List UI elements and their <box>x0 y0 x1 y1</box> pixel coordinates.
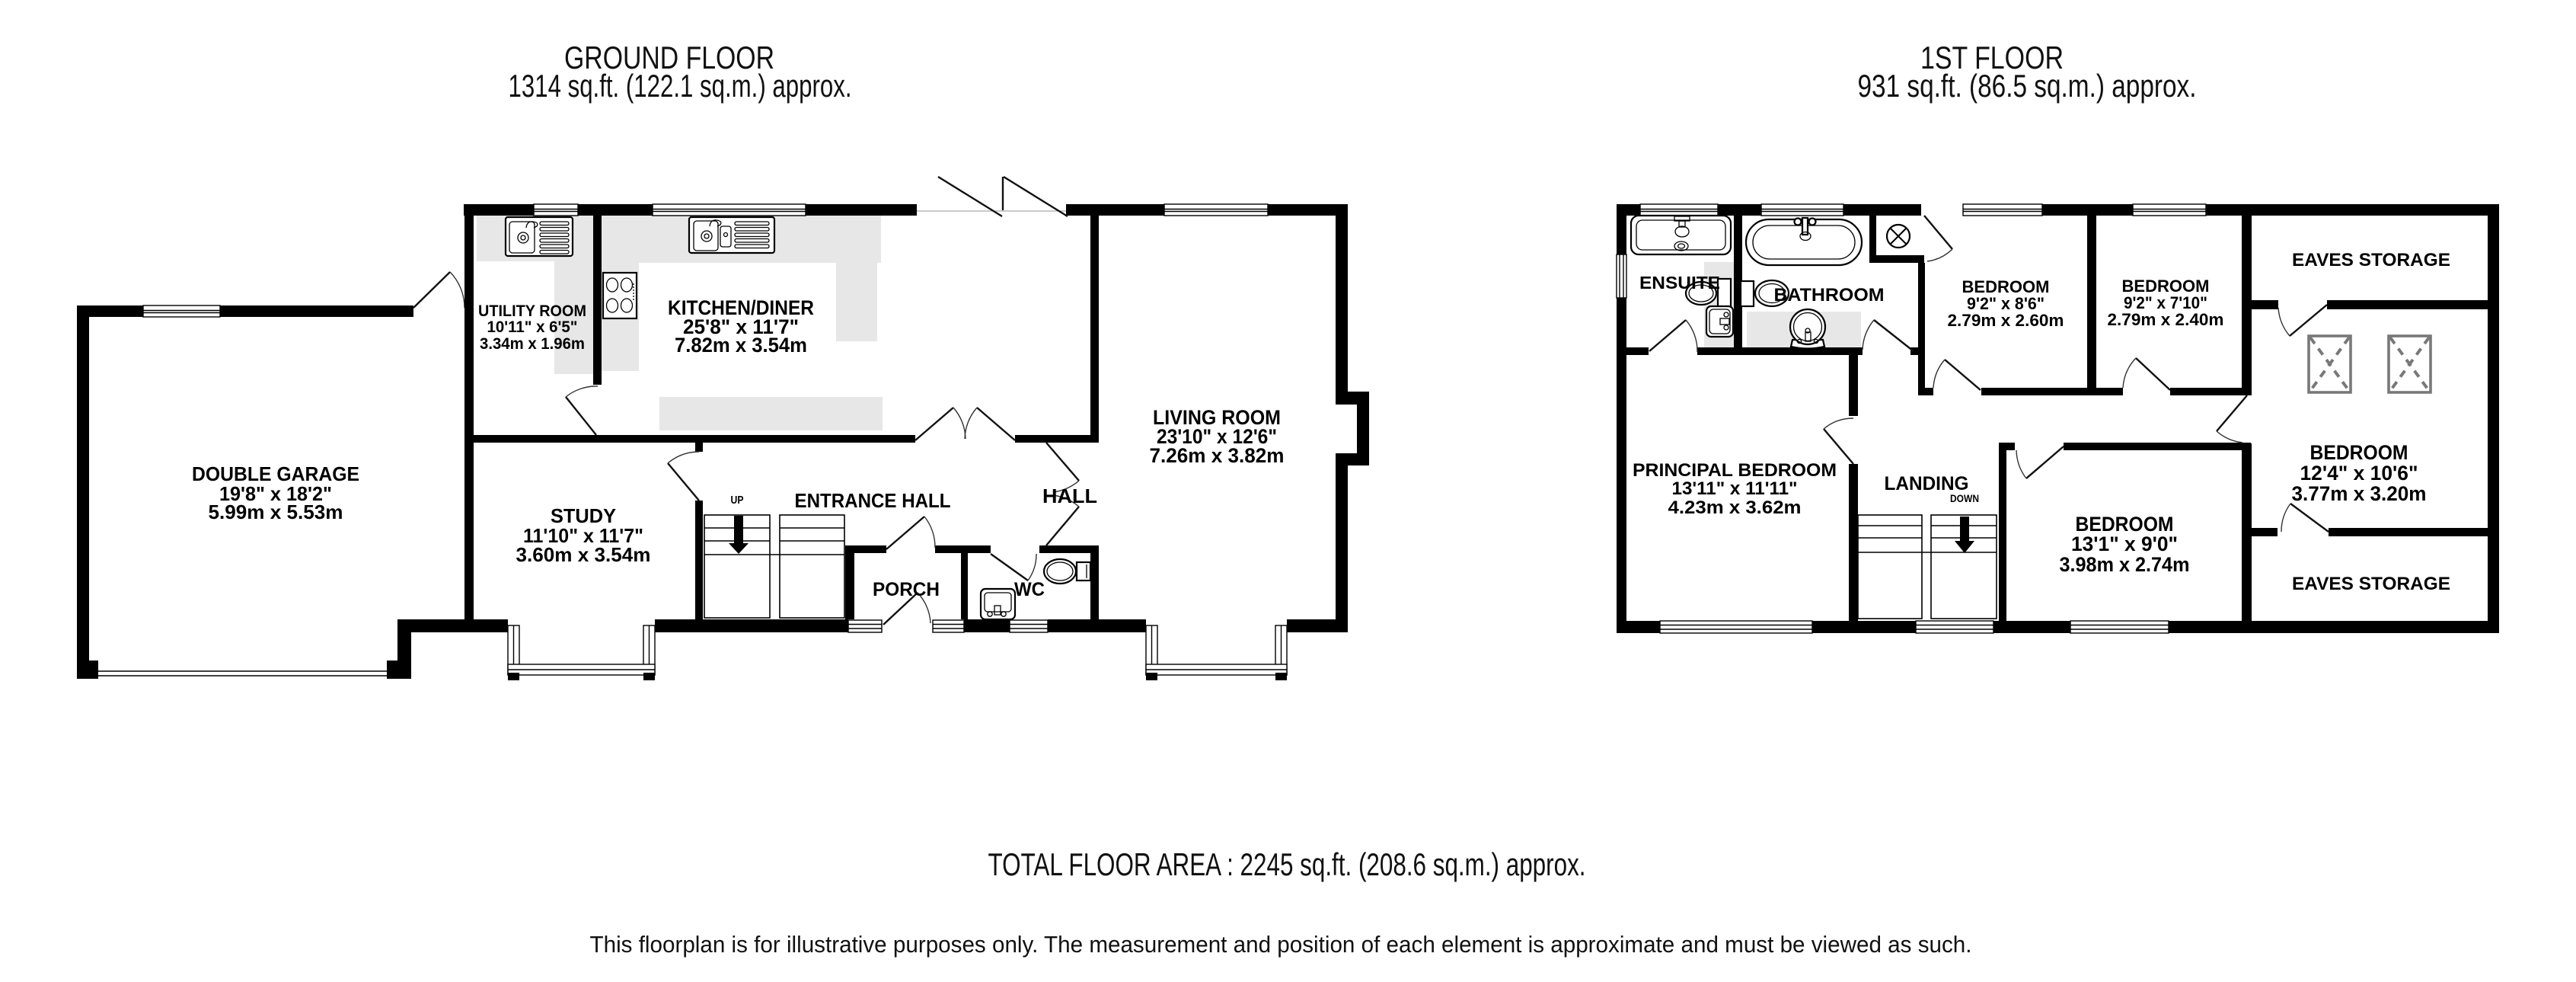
svg-text:UTILITY ROOM: UTILITY ROOM <box>478 302 586 320</box>
svg-text:7.82m x 3.54m: 7.82m x 3.54m <box>675 334 807 357</box>
svg-text:4.23m x 3.62m: 4.23m x 3.62m <box>1668 497 1802 518</box>
svg-text:7.26m x 3.82m: 7.26m x 3.82m <box>1150 444 1285 467</box>
svg-text:3.60m x 3.54m: 3.60m x 3.54m <box>516 543 651 566</box>
svg-text:UP: UP <box>731 494 744 507</box>
svg-text:WC: WC <box>1014 579 1045 600</box>
svg-text:10'11" x 6'5": 10'11" x 6'5" <box>487 318 578 336</box>
svg-text:1314 sq.ft. (122.1 sq.m.) appr: 1314 sq.ft. (122.1 sq.m.) approx. <box>509 68 852 104</box>
svg-text:BEDROOM: BEDROOM <box>2310 441 2408 464</box>
svg-text:BATHROOM: BATHROOM <box>1774 285 1885 305</box>
svg-text:ENSUITE: ENSUITE <box>1639 273 1720 293</box>
svg-text:12'4" x 10'6": 12'4" x 10'6" <box>2300 462 2418 485</box>
svg-text:13'1" x 9'0": 13'1" x 9'0" <box>2071 533 2178 555</box>
svg-text:2.79m x 2.60m: 2.79m x 2.60m <box>1948 311 2064 330</box>
svg-text:ENTRANCE HALL: ENTRANCE HALL <box>795 489 951 512</box>
svg-text:13'11" x 11'11": 13'11" x 11'11" <box>1672 478 1798 499</box>
svg-text:3.34m x 1.96m: 3.34m x 1.96m <box>480 335 585 353</box>
svg-text:3.77m x 3.20m: 3.77m x 3.20m <box>2292 482 2427 505</box>
svg-text:EAVES STORAGE: EAVES STORAGE <box>2292 574 2450 594</box>
svg-text:LANDING: LANDING <box>1885 473 1969 494</box>
svg-text:DOWN: DOWN <box>1950 492 1979 504</box>
svg-text:HALL: HALL <box>1042 485 1097 507</box>
svg-text:5.99m x 5.53m: 5.99m x 5.53m <box>209 501 343 523</box>
svg-text:931 sq.ft. (86.5 sq.m.) approx: 931 sq.ft. (86.5 sq.m.) approx. <box>1858 68 2197 104</box>
svg-text:EAVES STORAGE: EAVES STORAGE <box>2292 250 2450 270</box>
svg-text:PORCH: PORCH <box>873 579 940 600</box>
svg-text:This floorplan is for illustra: This floorplan is for illustrative purpo… <box>590 931 1972 958</box>
svg-text:PRINCIPAL BEDROOM: PRINCIPAL BEDROOM <box>1633 460 1837 481</box>
svg-text:TOTAL FLOOR AREA : 2245 sq.ft.: TOTAL FLOOR AREA : 2245 sq.ft. (208.6 sq… <box>988 846 1586 882</box>
svg-text:2.79m x 2.40m: 2.79m x 2.40m <box>2108 310 2224 329</box>
svg-text:3.98m x 2.74m: 3.98m x 2.74m <box>2060 553 2190 576</box>
